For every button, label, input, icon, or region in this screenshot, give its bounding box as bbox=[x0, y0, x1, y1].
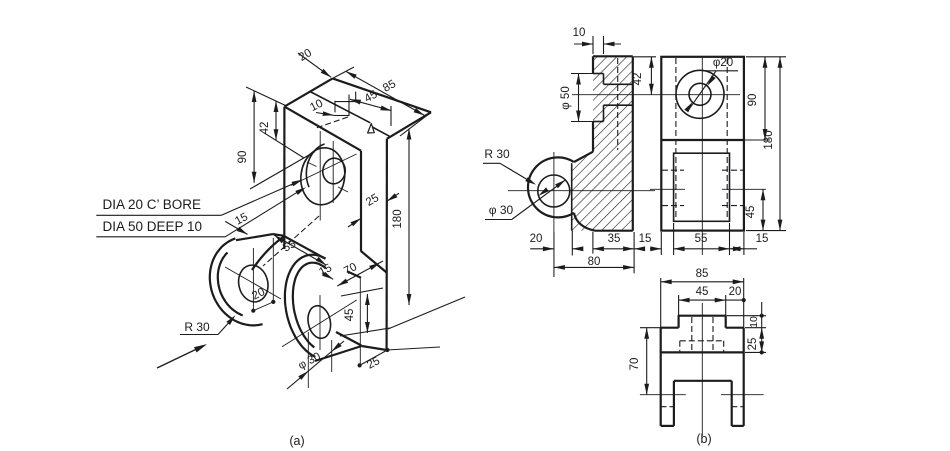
svg-text:φ20: φ20 bbox=[713, 57, 733, 69]
svg-text:15: 15 bbox=[639, 233, 652, 245]
svg-text:70: 70 bbox=[629, 358, 641, 371]
svg-text:10: 10 bbox=[748, 316, 760, 328]
svg-text:180: 180 bbox=[763, 130, 775, 149]
svg-text:45: 45 bbox=[696, 286, 709, 298]
svg-text:45: 45 bbox=[745, 206, 757, 219]
svg-text:45: 45 bbox=[344, 309, 356, 322]
svg-text:90: 90 bbox=[747, 94, 759, 107]
svg-text:42: 42 bbox=[632, 73, 644, 86]
svg-text:80: 80 bbox=[588, 256, 601, 268]
svg-text:15: 15 bbox=[756, 233, 769, 245]
svg-text:DIA 50 DEEP 10: DIA 50 DEEP 10 bbox=[103, 219, 203, 234]
svg-text:55: 55 bbox=[695, 233, 708, 245]
svg-text:φ 50: φ 50 bbox=[560, 86, 572, 109]
svg-text:85: 85 bbox=[696, 268, 709, 280]
svg-text:20: 20 bbox=[729, 286, 742, 298]
svg-text:42: 42 bbox=[259, 122, 271, 135]
svg-text:25: 25 bbox=[747, 338, 759, 351]
svg-text:10: 10 bbox=[573, 27, 586, 39]
svg-text:180: 180 bbox=[392, 209, 404, 228]
svg-text:35: 35 bbox=[608, 233, 621, 245]
svg-text:(a): (a) bbox=[289, 434, 304, 448]
svg-text:R 30: R 30 bbox=[484, 147, 510, 161]
svg-text:(b): (b) bbox=[696, 432, 711, 446]
svg-text:90: 90 bbox=[237, 151, 249, 164]
svg-text:R 30: R 30 bbox=[184, 320, 210, 334]
svg-text:20: 20 bbox=[530, 233, 543, 245]
svg-text:φ 30: φ 30 bbox=[489, 203, 514, 217]
svg-text:DIA 20 C’ BORE: DIA 20 C’ BORE bbox=[103, 197, 202, 212]
